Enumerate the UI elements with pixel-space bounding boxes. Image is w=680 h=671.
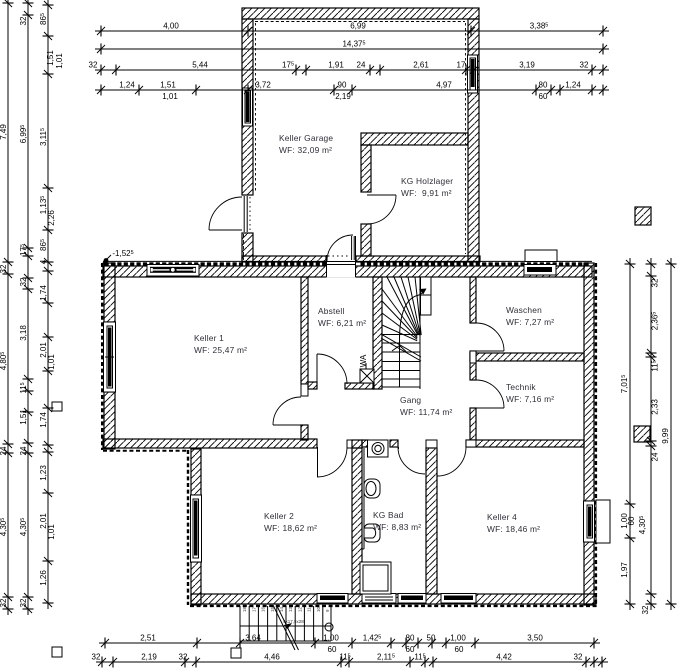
svg-text:18: 18	[242, 606, 247, 612]
svg-text:3,19: 3,19	[519, 61, 535, 70]
svg-text:4,97: 4,97	[436, 81, 452, 90]
svg-text:WF: 8,83 m²: WF: 8,83 m²	[373, 522, 421, 532]
svg-text:1,51: 1,51	[160, 81, 176, 90]
svg-text:4,46: 4,46	[264, 653, 280, 662]
svg-text:KG Holzlager: KG Holzlager	[401, 176, 453, 186]
svg-text:Keller 1: Keller 1	[194, 333, 224, 343]
svg-text:WF: 11,74 m²: WF: 11,74 m²	[400, 407, 453, 417]
svg-text:32: 32	[641, 605, 650, 614]
svg-text:13: 13	[288, 606, 293, 612]
svg-text:80: 80	[539, 81, 548, 90]
svg-text:1,24: 1,24	[565, 81, 581, 90]
svg-text:4,00: 4,00	[163, 22, 179, 31]
svg-text:WA: WA	[359, 354, 368, 367]
svg-text:WF: 32,09 m²: WF: 32,09 m²	[279, 145, 332, 155]
svg-text:1,01: 1,01	[55, 53, 64, 69]
svg-text:2,19: 2,19	[335, 92, 351, 101]
svg-text:1,51: 1,51	[19, 409, 28, 425]
svg-text:WF: 25,47 m²: WF: 25,47 m²	[194, 345, 247, 355]
svg-text:6,99: 6,99	[350, 22, 366, 31]
svg-text:1,00: 1,00	[323, 634, 339, 643]
svg-text:24: 24	[357, 61, 366, 70]
svg-text:32: 32	[0, 264, 8, 273]
svg-text:32: 32	[19, 277, 28, 286]
svg-text:1,01: 1,01	[47, 524, 56, 540]
svg-text:12: 12	[297, 606, 302, 612]
svg-text:7,49: 7,49	[0, 124, 8, 140]
svg-text:1,00: 1,00	[450, 634, 466, 643]
svg-text:1,97: 1,97	[620, 562, 629, 578]
svg-text:24: 24	[0, 446, 8, 455]
svg-text:10: 10	[316, 606, 321, 612]
svg-text:1,91: 1,91	[328, 61, 344, 70]
svg-text:1,74: 1,74	[39, 285, 48, 301]
svg-text:32: 32	[580, 61, 589, 70]
svg-text:17: 17	[457, 61, 466, 70]
svg-text:Waschen: Waschen	[506, 305, 542, 315]
svg-text:Keller 2: Keller 2	[264, 511, 294, 521]
svg-text:50: 50	[427, 634, 436, 643]
svg-text:4: 4	[39, 259, 48, 264]
svg-text:WF: 7,27 m²: WF: 7,27 m²	[506, 317, 554, 327]
svg-text:17: 17	[251, 606, 256, 612]
svg-text:1,51: 1,51	[46, 50, 55, 66]
svg-text:3,64: 3,64	[245, 634, 261, 643]
svg-text:WF: 18,62 m²: WF: 18,62 m²	[264, 523, 317, 533]
svg-text:2,61: 2,61	[413, 61, 429, 70]
svg-text:Keller 4: Keller 4	[487, 512, 517, 522]
svg-text:60: 60	[539, 92, 548, 101]
svg-text:3,18: 3,18	[19, 325, 28, 341]
svg-text:16: 16	[261, 606, 266, 612]
svg-text:-1,525: -1,525	[112, 249, 133, 258]
svg-text:90: 90	[338, 81, 347, 90]
svg-text:1,01: 1,01	[47, 354, 56, 370]
svg-text:2,26: 2,26	[47, 210, 56, 226]
svg-text:KG Bad: KG Bad	[373, 510, 404, 520]
svg-text:60: 60	[455, 645, 464, 654]
svg-text:4,42: 4,42	[496, 653, 512, 662]
svg-text:32: 32	[0, 598, 8, 607]
svg-text:5,44: 5,44	[192, 61, 208, 70]
svg-text:60: 60	[627, 516, 636, 525]
svg-text:1,24: 1,24	[119, 81, 135, 90]
svg-text:24: 24	[19, 446, 28, 455]
svg-text:1,26: 1,26	[39, 570, 48, 586]
svg-text:WF: 6,21 m²: WF: 6,21 m²	[318, 318, 366, 328]
svg-text:Gang: Gang	[400, 395, 421, 405]
svg-text:1,01: 1,01	[162, 92, 178, 101]
svg-text:WF: 18,46 m²: WF: 18,46 m²	[487, 524, 540, 534]
svg-text:WF: 7,16 m²: WF: 7,16 m²	[506, 394, 554, 404]
svg-text:32: 32	[574, 653, 583, 662]
svg-text:1,74: 1,74	[39, 412, 48, 428]
svg-text:Abstell: Abstell	[318, 306, 345, 316]
svg-text:60: 60	[328, 645, 337, 654]
svg-text:2,51: 2,51	[140, 634, 156, 643]
svg-text:24: 24	[651, 452, 660, 461]
svg-text:32: 32	[19, 598, 28, 607]
svg-text:1,23: 1,23	[39, 465, 48, 481]
svg-text:Keller Garage: Keller Garage	[279, 133, 333, 143]
svg-text:3,50: 3,50	[527, 634, 543, 643]
svg-text:Technik: Technik	[506, 382, 536, 392]
svg-text:2,33: 2,33	[651, 399, 660, 415]
svg-text:32: 32	[92, 653, 101, 662]
svg-text:2,19: 2,19	[141, 653, 157, 662]
svg-text:32: 32	[19, 16, 28, 25]
svg-text:14,375: 14,375	[342, 40, 365, 49]
svg-text:80: 80	[406, 634, 415, 643]
svg-text:32: 32	[179, 653, 188, 662]
svg-text:WF: 9,91 m²: WF: 9,91 m²	[401, 188, 452, 198]
svg-text:4x17,5x28: 4x17,5x28	[283, 619, 304, 624]
svg-text:9,99: 9,99	[661, 428, 670, 444]
svg-text:11: 11	[307, 607, 312, 612]
svg-text:32: 32	[651, 278, 660, 287]
svg-text:3,72: 3,72	[255, 81, 271, 90]
svg-text:32: 32	[89, 61, 98, 70]
